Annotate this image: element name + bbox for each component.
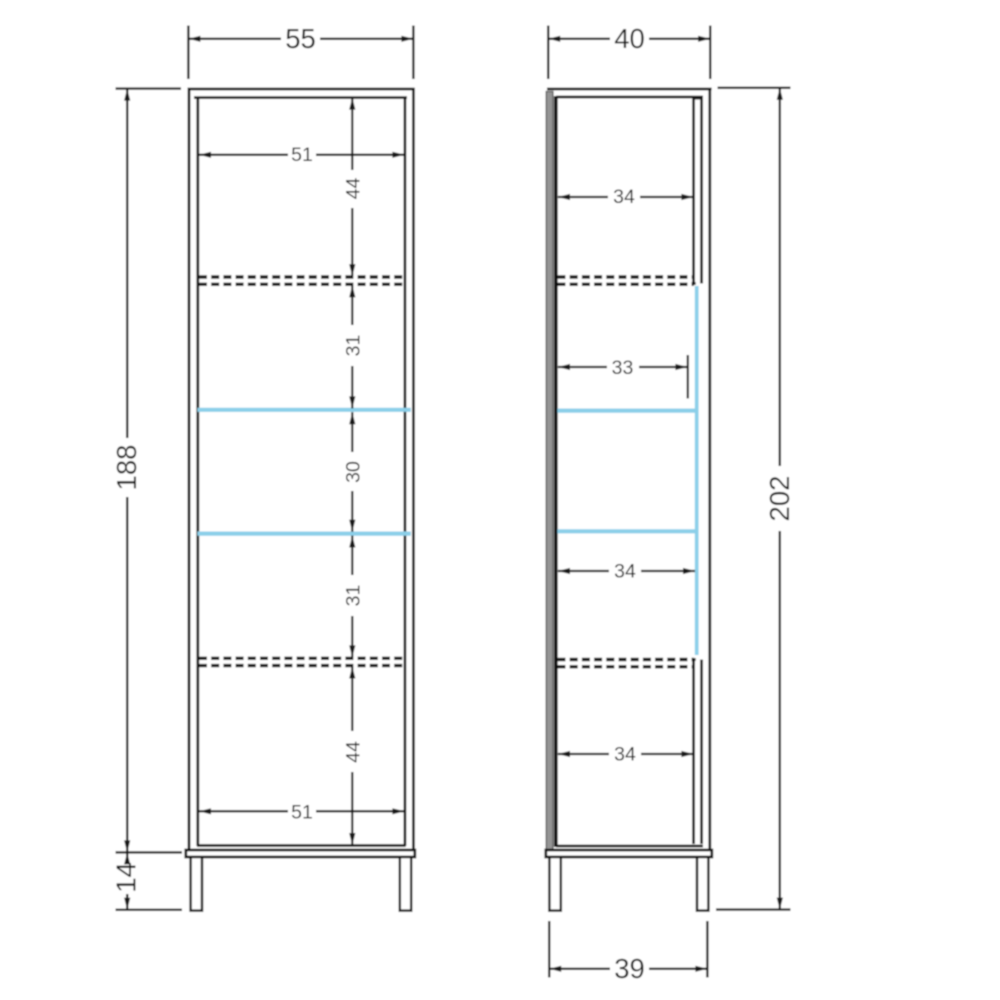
svg-text:33: 33: [612, 357, 634, 379]
svg-text:31: 31: [342, 335, 364, 357]
svg-text:55: 55: [285, 23, 316, 54]
svg-text:14: 14: [111, 862, 142, 893]
svg-text:188: 188: [111, 445, 142, 491]
svg-text:30: 30: [342, 461, 364, 483]
svg-text:51: 51: [291, 802, 313, 824]
svg-text:44: 44: [342, 741, 364, 763]
svg-text:34: 34: [614, 744, 636, 766]
svg-text:44: 44: [342, 178, 364, 200]
svg-text:202: 202: [764, 476, 795, 522]
svg-text:34: 34: [614, 561, 636, 583]
svg-text:40: 40: [614, 23, 645, 54]
svg-text:39: 39: [614, 953, 645, 984]
svg-text:51: 51: [291, 144, 313, 166]
svg-text:31: 31: [342, 585, 364, 607]
svg-text:34: 34: [613, 186, 635, 208]
